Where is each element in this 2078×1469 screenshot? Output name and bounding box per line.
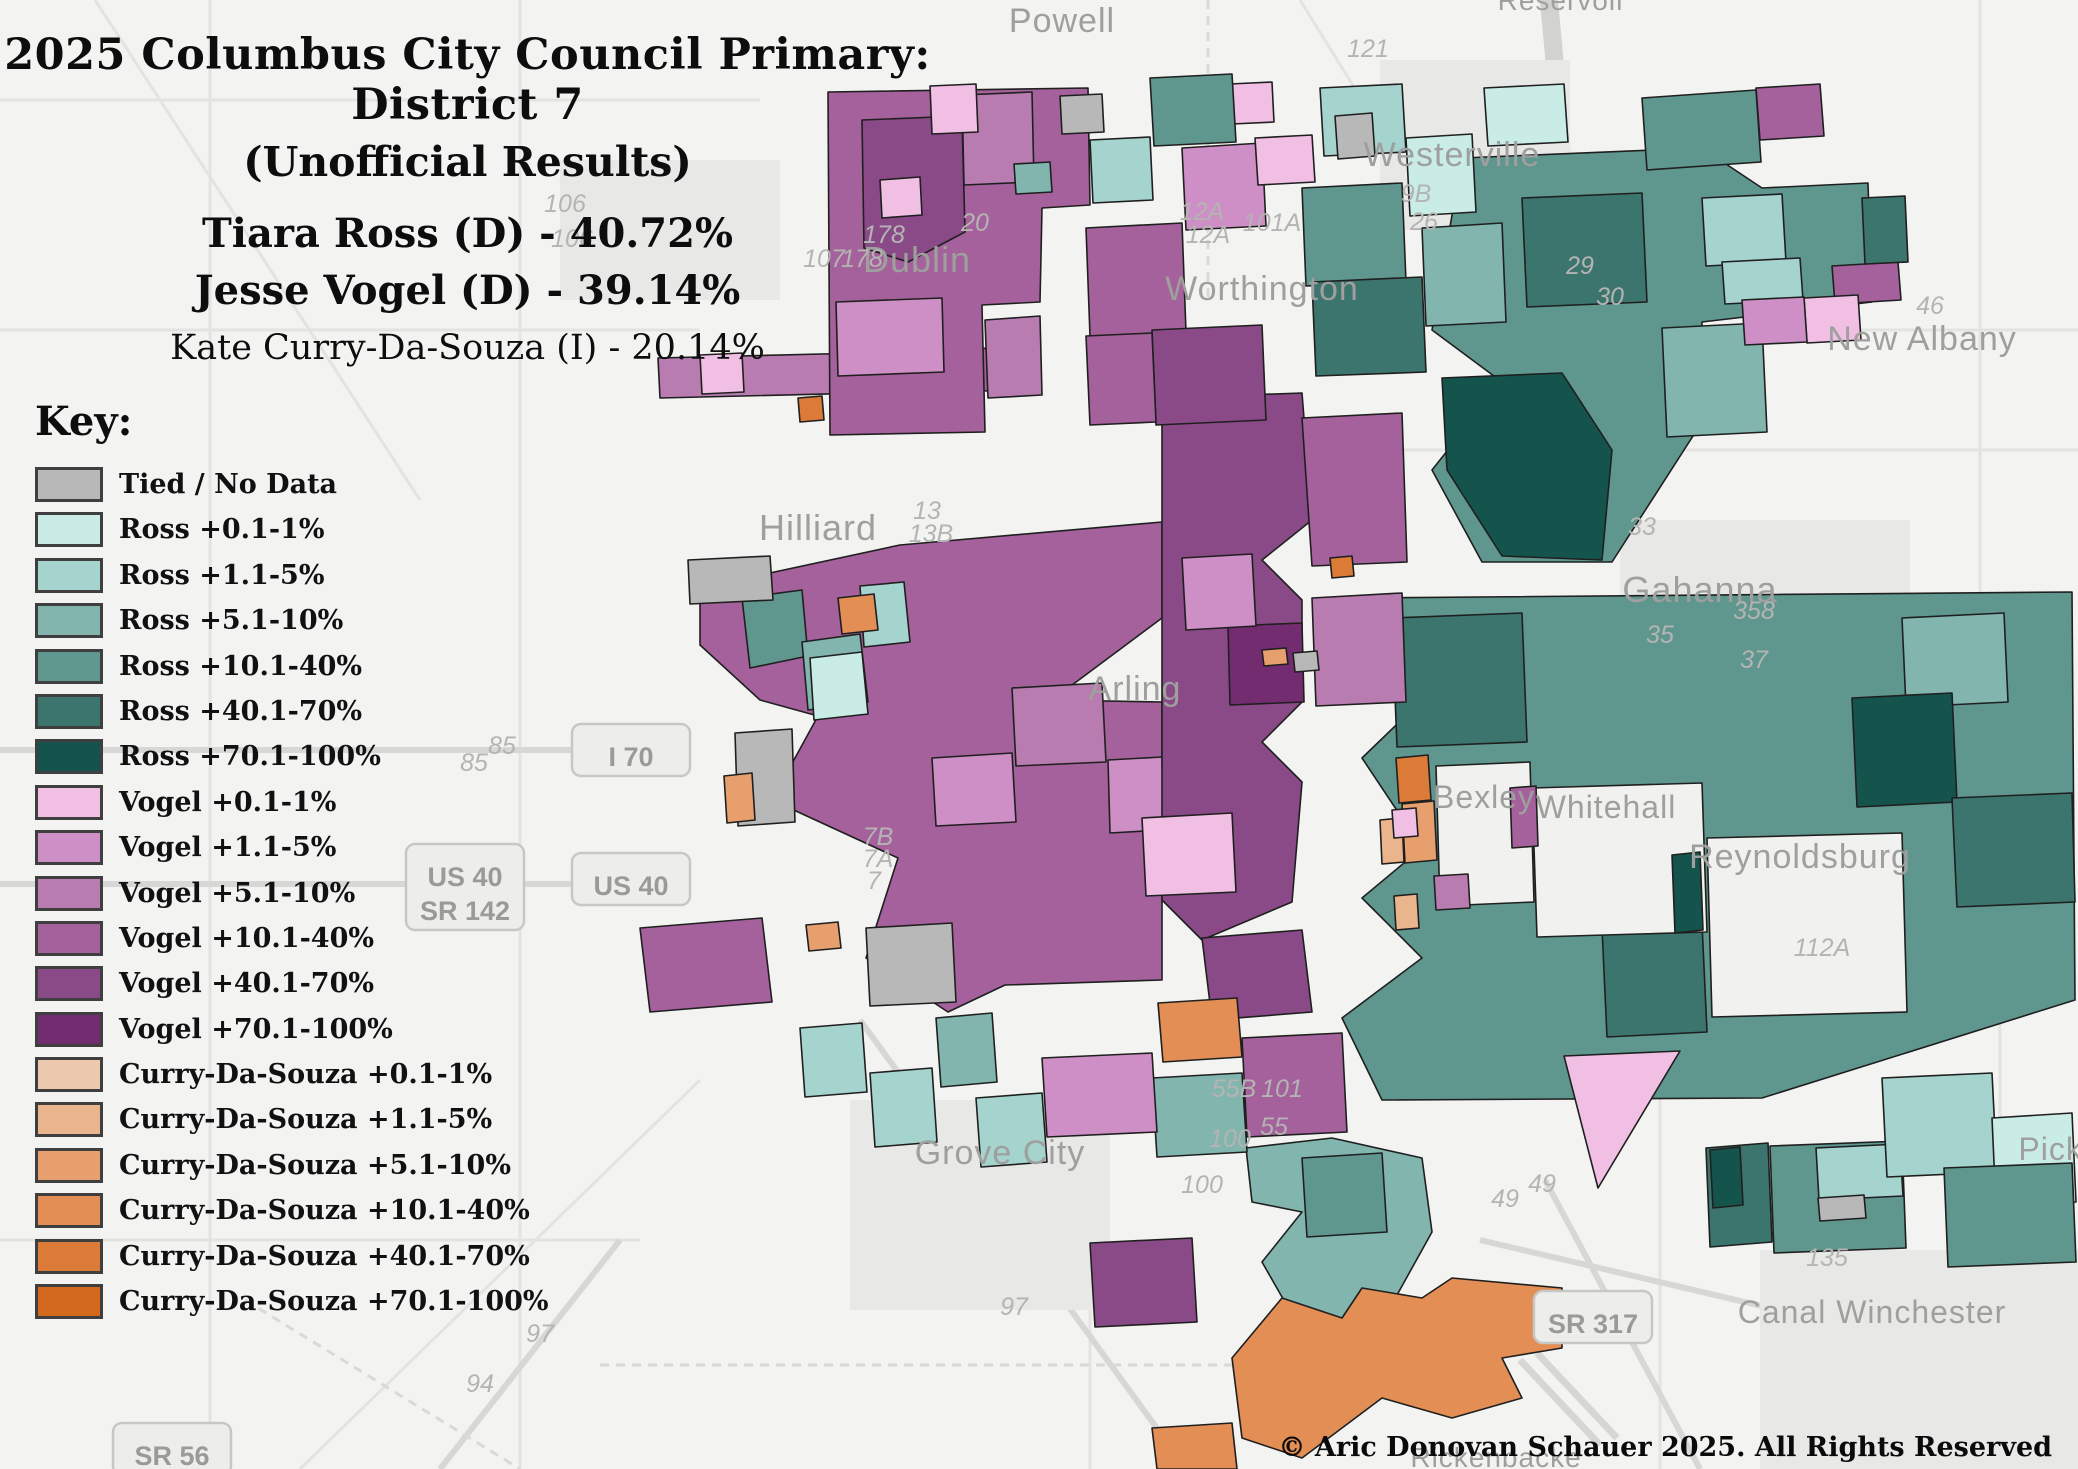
legend-swatch — [35, 1102, 103, 1137]
route-number-label: 46 — [1916, 292, 1944, 320]
city-label: Canal Winchester — [1738, 1294, 2007, 1330]
precinct-vogel4 — [1756, 84, 1824, 140]
route-number-label: 49 — [1528, 1170, 1556, 1198]
route-number-label: 35 — [1646, 621, 1674, 649]
city-label: Hilliard — [759, 507, 877, 548]
legend-label: Curry-Da-Souza +10.1-40% — [119, 1195, 530, 1226]
route-number-label: 100 — [1181, 1171, 1223, 1199]
legend-swatch — [35, 1239, 103, 1274]
legend-label: Ross +40.1-70% — [119, 696, 362, 727]
legend-title: Key: — [35, 398, 549, 445]
legend-label: Curry-Da-Souza +40.1-70% — [119, 1241, 530, 1272]
legend-swatch — [35, 1012, 103, 1047]
route-number-label: 135 — [1806, 1244, 1848, 1272]
legend-swatch — [35, 876, 103, 911]
legend-row: Ross +40.1-70% — [35, 696, 549, 727]
precinct-curry4 — [1158, 998, 1242, 1062]
precinct-vogel3 — [1434, 874, 1470, 910]
precinct-vogel1 — [1230, 82, 1274, 124]
precinct-vogel2 — [932, 753, 1016, 826]
route-number-label: 30 — [1596, 283, 1624, 311]
legend-label: Curry-Da-Souza +5.1-10% — [119, 1150, 511, 1181]
precinct-vogel2 — [1742, 297, 1807, 345]
precinct-vogel1 — [880, 177, 922, 218]
route-number-label: 55B — [1212, 1075, 1256, 1103]
city-label: Grove City — [915, 1134, 1086, 1172]
precinct-ross3 — [1422, 223, 1506, 326]
precinct-vogel4 — [1302, 413, 1407, 566]
precinct-ross5 — [1602, 923, 1707, 1037]
route-shield-text: SR 317 — [1548, 1309, 1638, 1339]
route-number-label: 55 — [1260, 1113, 1288, 1141]
legend-swatch — [35, 1193, 103, 1228]
legend-row: Ross +1.1-5% — [35, 560, 549, 591]
legend-row: Curry-Da-Souza +5.1-10% — [35, 1150, 549, 1181]
precinct-ross3 — [936, 1013, 997, 1087]
legend-label: Ross +5.1-10% — [119, 605, 343, 636]
precinct-vogel2 — [1042, 1053, 1157, 1137]
precinct-curry5 — [798, 396, 824, 422]
precinct-tied — [1818, 1195, 1866, 1221]
precinct-ross2 — [1702, 194, 1786, 266]
precinct-curry4 — [838, 594, 878, 634]
city-label: Westerville — [1364, 136, 1541, 174]
legend-swatch — [35, 1284, 103, 1319]
precinct-ross4 — [1944, 1163, 2076, 1267]
legend-label: Curry-Da-Souza +0.1-1% — [119, 1059, 492, 1090]
legend-label: Curry-Da-Souza +70.1-100% — [119, 1286, 549, 1317]
city-label: Arling — [1089, 670, 1182, 708]
legend-label: Curry-Da-Souza +1.1-5% — [119, 1104, 492, 1135]
legend-label: Tied / No Data — [119, 469, 337, 500]
precinct-curry4 — [1152, 1423, 1237, 1469]
legend-label: Ross +70.1-100% — [119, 741, 381, 772]
route-number-label: 112A — [1794, 934, 1851, 962]
legend-row: Curry-Da-Souza +70.1-100% — [35, 1286, 549, 1317]
precinct-vogel5 — [1152, 325, 1266, 425]
precinct-vogel1 — [1255, 135, 1315, 185]
city-label: Worthington — [1165, 270, 1359, 308]
legend-label: Ross +1.1-5% — [119, 560, 325, 591]
route-shield: I 70 — [572, 724, 690, 776]
legend-row: Curry-Da-Souza +10.1-40% — [35, 1195, 549, 1226]
precinct-ross5 — [1522, 193, 1647, 307]
route-number-label: 106 — [544, 190, 586, 218]
city-label: Bexley — [1433, 779, 1535, 815]
precinct-curry3 — [806, 922, 841, 951]
copyright-notice: © Aric Donovan Schauer 2025. All Rights … — [1279, 1432, 2053, 1463]
legend-label: Vogel +0.1-1% — [119, 787, 336, 818]
route-number-label: 13B — [909, 520, 953, 548]
route-number-label: 94 — [466, 1370, 494, 1398]
legend-label: Vogel +40.1-70% — [119, 968, 374, 999]
precinct-tied — [1293, 651, 1319, 672]
city-label: Powell — [1009, 2, 1115, 40]
legend-swatch — [35, 785, 103, 820]
route-number-label: 178 — [841, 245, 883, 273]
legend-row: Vogel +1.1-5% — [35, 832, 549, 863]
legend-row: Ross +5.1-10% — [35, 605, 549, 636]
route-number-label: 20 — [960, 209, 989, 237]
precinct-ross2 — [800, 1023, 867, 1097]
legend-row: Vogel +70.1-100% — [35, 1014, 549, 1045]
legend-row: Ross +10.1-40% — [35, 651, 549, 682]
route-shield: SR 317 — [1534, 1291, 1652, 1343]
precinct-vogel4 — [1086, 333, 1156, 425]
precinct-ross2 — [1090, 137, 1153, 203]
route-number-label: 26 — [1409, 208, 1438, 236]
legend-swatch — [35, 512, 103, 547]
precinct-vogel1 — [1392, 808, 1418, 838]
precinct-vogel2 — [1182, 554, 1256, 630]
route-number-label: 37 — [1740, 646, 1769, 674]
route-number-label: 7 — [867, 867, 882, 895]
precinct-tied — [866, 923, 956, 1006]
legend-label: Vogel +70.1-100% — [119, 1014, 393, 1045]
route-number-label: 12A — [1186, 221, 1230, 249]
precinct-curry5 — [1396, 755, 1431, 803]
precinct-ross4 — [1642, 90, 1761, 170]
legend-label: Vogel +1.1-5% — [119, 832, 336, 863]
legend-label: Ross +0.1-1% — [119, 514, 325, 545]
legend-swatch — [35, 830, 103, 865]
legend-swatch — [35, 1057, 103, 1092]
precinct-ross5 — [1862, 196, 1908, 264]
precinct-ross4 — [1302, 1153, 1387, 1237]
route-number-label: 101 — [1261, 1075, 1303, 1103]
legend-row: Curry-Da-Souza +0.1-1% — [35, 1059, 549, 1090]
precinct-vogel1 — [700, 353, 744, 394]
route-number-label: 106 — [551, 225, 593, 253]
legend-row: Vogel +0.1-1% — [35, 787, 549, 818]
precinct-tied — [688, 556, 773, 604]
precinct-tied — [1060, 94, 1104, 134]
precinct-curry2 — [1394, 894, 1419, 930]
legend-rows: Tied / No DataRoss +0.1-1%Ross +1.1-5%Ro… — [35, 469, 549, 1317]
legend-label: Vogel +5.1-10% — [119, 878, 355, 909]
legend-row: Ross +70.1-100% — [35, 741, 549, 772]
legend-row: Vogel +40.1-70% — [35, 968, 549, 999]
route-shield-text: I 70 — [608, 742, 653, 772]
precinct-curry3 — [724, 773, 755, 823]
precinct-vogel1 — [1142, 813, 1236, 896]
legend-swatch — [35, 603, 103, 638]
legend-row: Curry-Da-Souza +40.1-70% — [35, 1241, 549, 1272]
city-label: New Albany — [1827, 320, 2017, 358]
legend-row: Vogel +10.1-40% — [35, 923, 549, 954]
route-shield-text: SR 56 — [134, 1441, 209, 1469]
precinct-ross3 — [1902, 613, 2008, 707]
city-label: Reynoldsburg — [1689, 838, 1911, 876]
route-number-label: 9B — [1401, 180, 1432, 208]
precinct-ross1 — [810, 652, 868, 720]
legend-label: Ross +10.1-40% — [119, 651, 362, 682]
precinct-ross5 — [1392, 613, 1527, 747]
precinct-ross6 — [1710, 1147, 1743, 1208]
legend-swatch — [35, 649, 103, 684]
legend-row: Tied / No Data — [35, 469, 549, 500]
precinct-vogel5 — [1090, 1238, 1197, 1327]
legend-swatch — [35, 1148, 103, 1183]
legend-row: Curry-Da-Souza +1.1-5% — [35, 1104, 549, 1135]
precinct-ross4 — [1150, 74, 1236, 146]
city-label: Picke — [2018, 1131, 2078, 1167]
route-number-label: 121 — [1347, 35, 1389, 63]
route-number-label: 107 — [803, 245, 846, 273]
precinct-vogel3 — [1312, 593, 1406, 706]
precinct-ross5 — [1952, 793, 2075, 907]
precinct-vogel2 — [836, 298, 944, 376]
precinct-curry5 — [1330, 556, 1354, 578]
legend-row: Vogel +5.1-10% — [35, 878, 549, 909]
precinct-ross2 — [1882, 1073, 1997, 1177]
route-number-label: 29 — [1565, 252, 1594, 280]
route-number-label: 97 — [1000, 1293, 1029, 1321]
precinct-ross3 — [1014, 162, 1052, 194]
map-legend: Key: Tied / No DataRoss +0.1-1%Ross +1.1… — [35, 398, 549, 1331]
route-shield-text: US 40 — [593, 871, 668, 901]
route-shield: US 40 — [572, 853, 690, 905]
legend-swatch — [35, 558, 103, 593]
legend-row: Ross +0.1-1% — [35, 514, 549, 545]
route-number-label: 100 — [1209, 1125, 1251, 1153]
city-label: Whitehall — [1536, 789, 1677, 825]
legend-swatch — [35, 921, 103, 956]
route-number-label: 101A — [1243, 209, 1301, 237]
city-label: Reservoir — [1498, 0, 1627, 16]
route-number-label: 49 — [1491, 1185, 1519, 1213]
route-number-label: 358 — [1733, 597, 1775, 625]
legend-swatch — [35, 467, 103, 502]
precinct-curry3 — [1262, 648, 1288, 666]
legend-swatch — [35, 694, 103, 729]
precinct-ross6 — [1852, 693, 1957, 807]
precinct-vogel4 — [640, 918, 772, 1012]
precinct-vogel1 — [930, 84, 978, 134]
legend-label: Vogel +10.1-40% — [119, 923, 374, 954]
legend-swatch — [35, 739, 103, 774]
route-number-label: 33 — [1628, 513, 1656, 541]
precinct-vogel3 — [985, 316, 1042, 398]
route-shield: SR 56 — [113, 1423, 231, 1469]
legend-swatch — [35, 966, 103, 1001]
